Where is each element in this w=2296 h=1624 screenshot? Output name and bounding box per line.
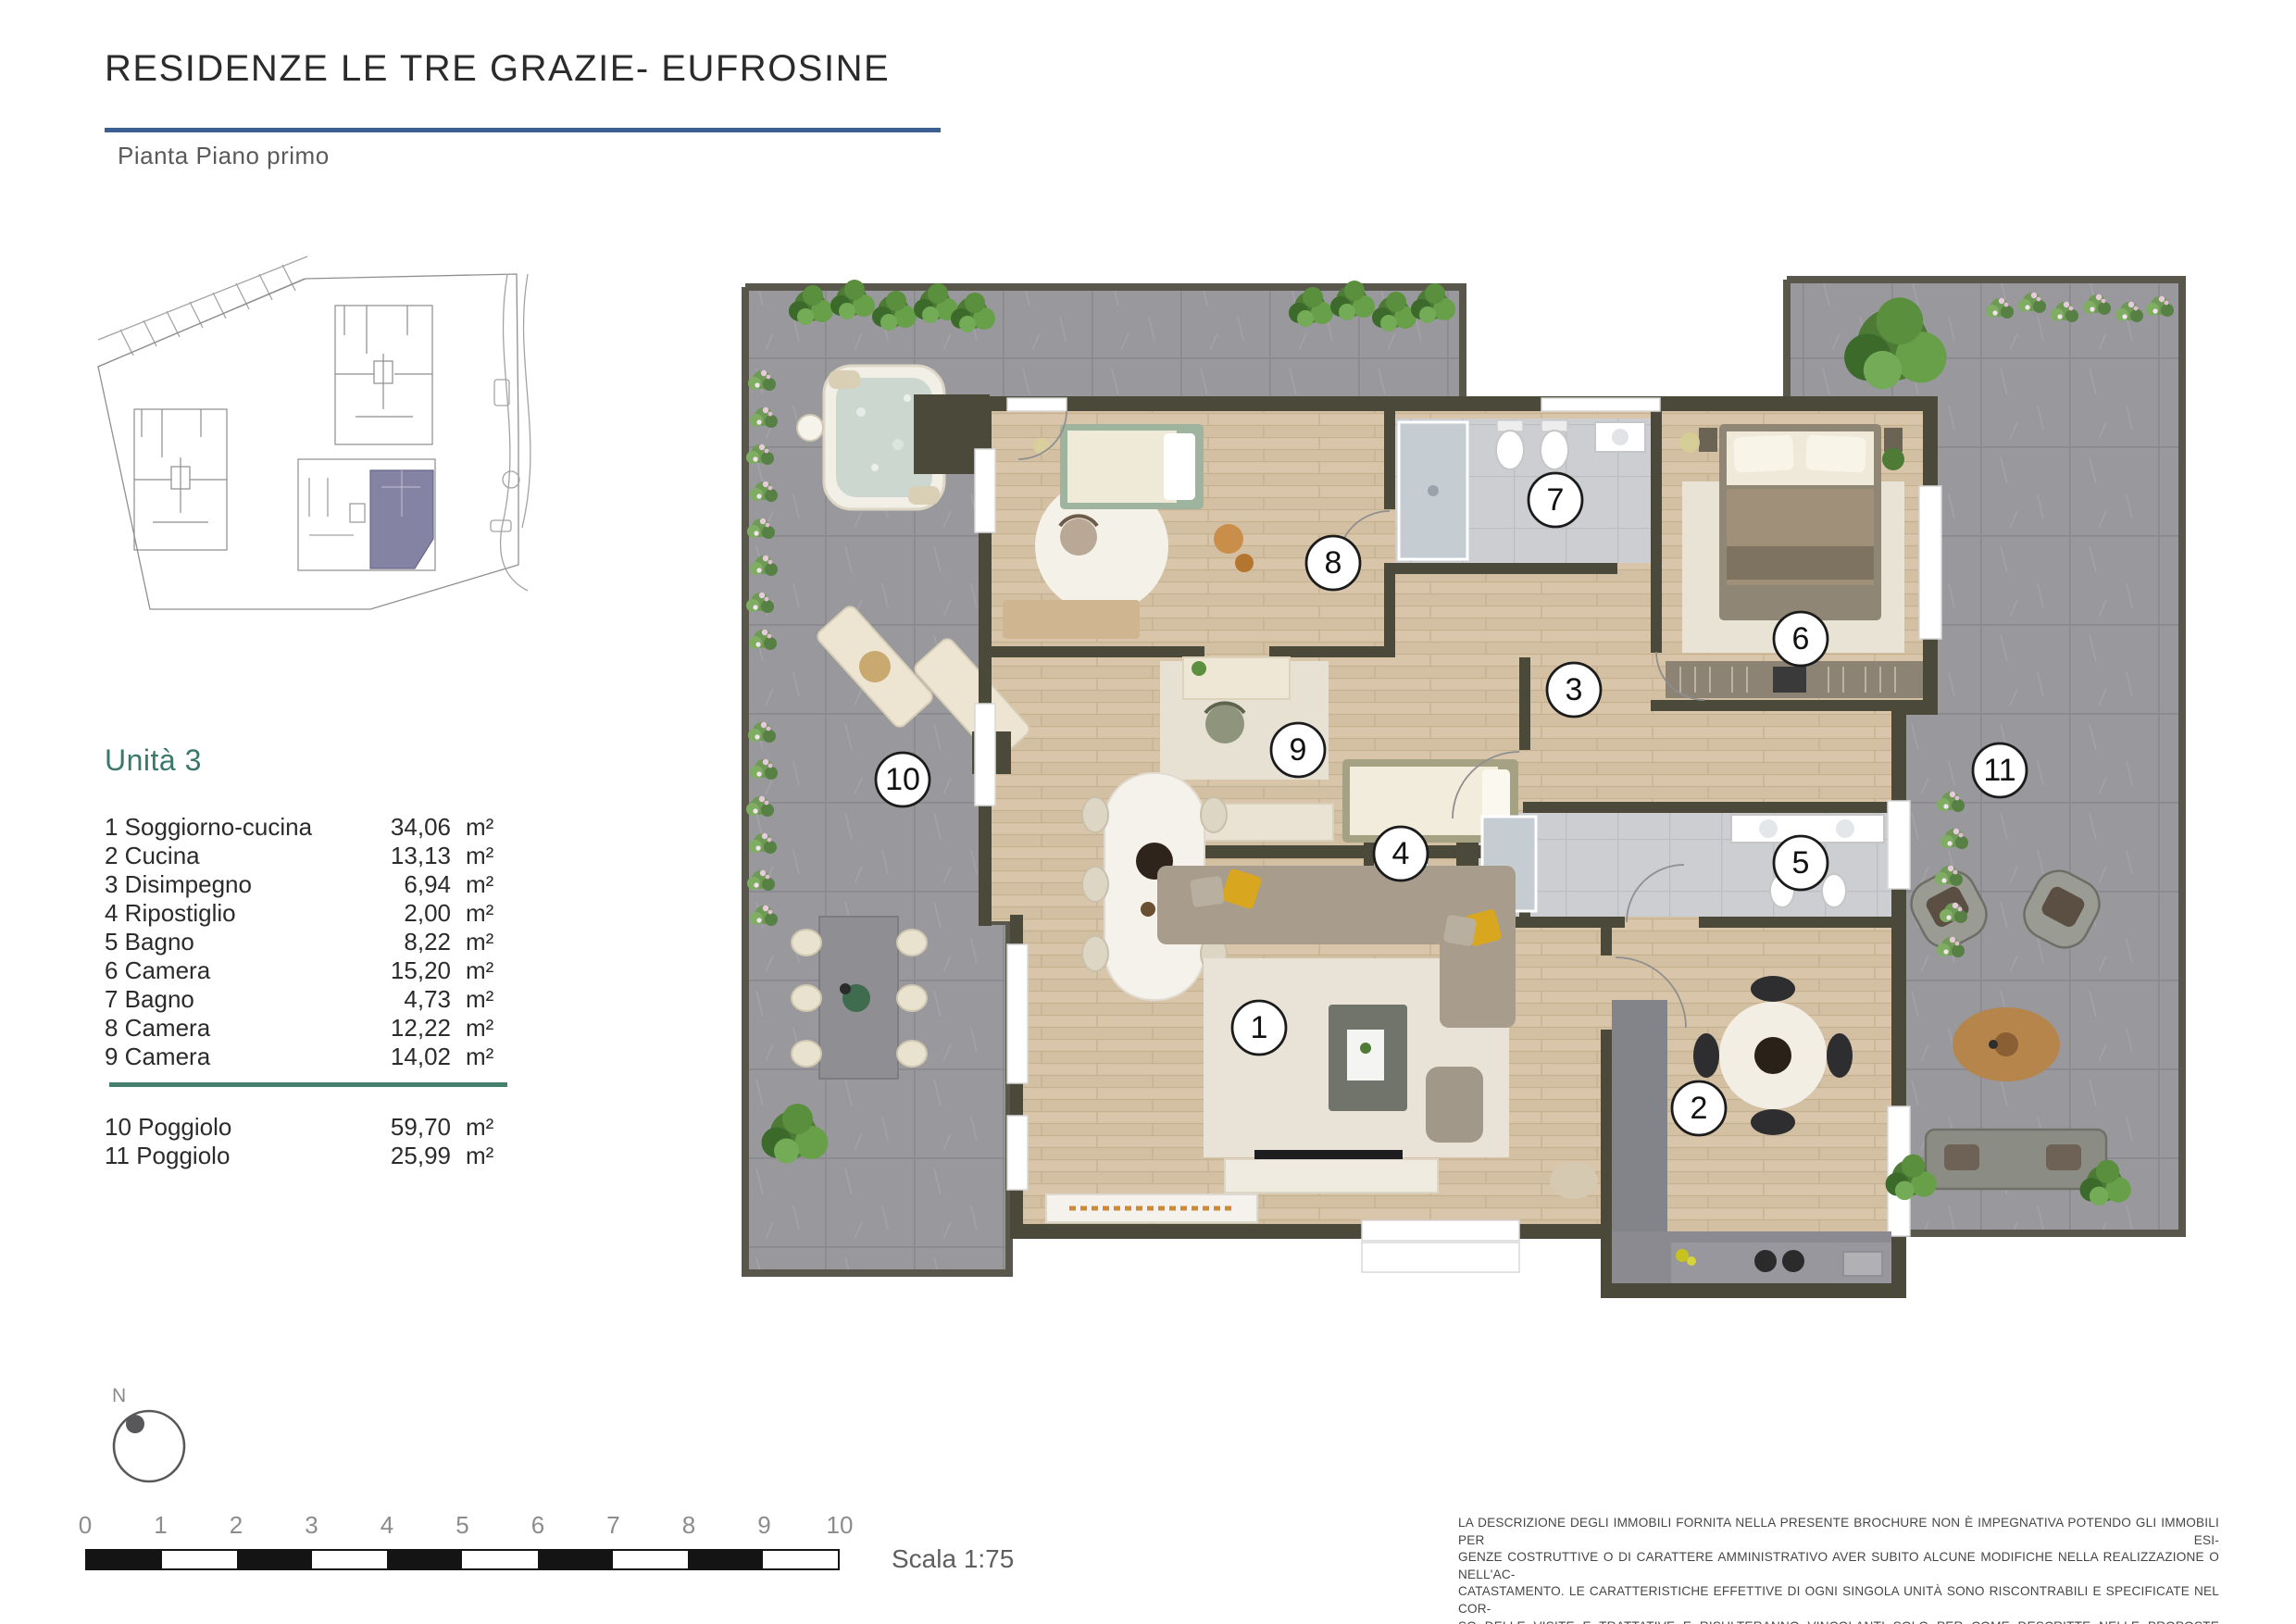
legend-row: 1 Soggiorno-cucina34,06m²: [105, 813, 512, 842]
legend-room-area: 8,22: [375, 928, 451, 956]
toilet: [1496, 431, 1524, 469]
legend-room-name: 3 Disimpegno: [105, 870, 375, 899]
legend-room-area: 13,13: [375, 842, 451, 870]
disclaimer-line: LA DESCRIZIONE DEGLI IMMOBILI FORNITA NE…: [1458, 1515, 2219, 1549]
disclaimer-line: GENZE COSTRUTTIVE O DI CARATTERE AMMINIS…: [1458, 1549, 2219, 1583]
scale-tick-label: 7: [606, 1511, 619, 1540]
disclaimer: LA DESCRIZIONE DEGLI IMMOBILI FORNITA NE…: [1458, 1515, 2219, 1624]
legend-room-name: 5 Bagno: [105, 928, 375, 956]
room-badge-number: 6: [1792, 621, 1810, 656]
legend-row: 7 Bagno4,73m²: [105, 985, 512, 1014]
legend-row: 2 Cucina13,13m²: [105, 842, 512, 870]
legend-room-name: 11 Poggiolo: [105, 1142, 375, 1170]
legend-row: 5 Bagno8,22m²: [105, 928, 512, 956]
legend-area-unit: m²: [451, 928, 512, 956]
legend-room-name: 8 Camera: [105, 1014, 375, 1043]
legend-room-area: 59,70: [375, 1113, 451, 1142]
site-building-top: [335, 306, 432, 444]
legend-room-list: 1 Soggiorno-cucina34,06m²2 Cucina13,13m²…: [105, 813, 512, 1071]
kitchen-sink: [1843, 1252, 1882, 1276]
scale-tick-label: 1: [154, 1511, 167, 1540]
scale-segment: [387, 1551, 462, 1568]
scale-segment: [237, 1551, 312, 1568]
room-badge-number: 5: [1792, 845, 1810, 881]
scale-segment: [538, 1551, 613, 1568]
room-badge-number: 11: [1983, 753, 2015, 788]
legend-area-unit: m²: [451, 842, 512, 870]
legend-area-unit: m²: [451, 1142, 512, 1170]
side-table: [797, 415, 823, 441]
toilet: [1822, 874, 1846, 907]
legend-room-name: 9 Camera: [105, 1043, 375, 1071]
legend-room-area: 15,20: [375, 956, 451, 985]
floor-plan: 1234567891011: [736, 269, 2190, 1301]
unit-label: Unità 3: [105, 743, 512, 778]
scale-tick-label: 3: [305, 1511, 318, 1540]
tv: [1254, 1150, 1403, 1159]
scalebar-ticks: 012345678910: [85, 1511, 840, 1539]
dresser: [1003, 600, 1140, 639]
chair: [1060, 518, 1097, 556]
legend-divider: [109, 1082, 507, 1087]
scale-tick-label: 0: [79, 1511, 92, 1540]
scale-segment: [688, 1551, 763, 1568]
legend-area-unit: m²: [451, 870, 512, 899]
legend-row: 6 Camera15,20m²: [105, 956, 512, 985]
brochure-page: RESIDENZE LE TRE GRAZIE- EUFROSINE Piant…: [0, 0, 2296, 1624]
legend-room-name: 10 Poggiolo: [105, 1113, 375, 1142]
legend-room-name: 1 Soggiorno-cucina: [105, 813, 375, 842]
room-badge-number: 1: [1251, 1010, 1268, 1045]
legend-area-unit: m²: [451, 956, 512, 985]
legend-room-name: 7 Bagno: [105, 985, 375, 1014]
page-title: RESIDENZE LE TRE GRAZIE- EUFROSINE: [105, 48, 890, 90]
scale-label: Scala 1:75: [892, 1544, 1014, 1574]
room-badge-number: 2: [1691, 1091, 1708, 1126]
site-roads: [98, 256, 530, 609]
scale-tick-label: 5: [455, 1511, 468, 1540]
scale-tick-label: 4: [381, 1511, 393, 1540]
room-badge-number: 8: [1325, 545, 1342, 581]
scale-segment: [312, 1551, 387, 1568]
tv-console: [1225, 1159, 1438, 1193]
legend-row: 4 Ripostiglio2,00m²: [105, 899, 512, 928]
legend-room-area: 2,00: [375, 899, 451, 928]
disclaimer-line: SO DELLE VISITE E TRATTATIVE E RISULTERA…: [1458, 1618, 2219, 1624]
legend-row: 9 Camera14,02m²: [105, 1043, 512, 1071]
scale-segment: [613, 1551, 688, 1568]
legend-room-name: 2 Cucina: [105, 842, 375, 870]
legend-room-area: 6,94: [375, 870, 451, 899]
scale-segment: [763, 1551, 838, 1568]
scale-segment: [462, 1551, 537, 1568]
pouf: [1426, 1067, 1483, 1143]
legend-area-unit: m²: [451, 1014, 512, 1043]
room-badge-number: 4: [1392, 836, 1410, 871]
legend-row: 11 Poggiolo25,99m²: [105, 1142, 512, 1170]
scale-tick-label: 10: [827, 1511, 854, 1540]
scalebar: [85, 1549, 840, 1570]
site-building-left: [134, 409, 227, 550]
north-indicator: [88, 1385, 208, 1496]
compass-north-dot: [126, 1415, 144, 1433]
room-badge-number: 3: [1566, 672, 1583, 707]
legend-balcony-list: 10 Poggiolo59,70m²11 Poggiolo25,99m²: [105, 1113, 512, 1170]
disclaimer-line: CATASTAMENTO. LE CARATTERISTICHE EFFETTI…: [1458, 1583, 2219, 1618]
scale-tick-label: 8: [682, 1511, 695, 1540]
legend-area-unit: m²: [451, 1043, 512, 1071]
legend-room-name: 6 Camera: [105, 956, 375, 985]
room-badge-number: 9: [1290, 732, 1307, 768]
compass-north-label: N: [112, 1385, 126, 1407]
scale-segment: [87, 1551, 162, 1568]
legend-room-area: 25,99: [375, 1142, 451, 1170]
scale-tick-label: 6: [531, 1511, 544, 1540]
room-badge-number: 10: [885, 762, 920, 797]
legend-row: 10 Poggiolo59,70m²: [105, 1113, 512, 1142]
legend-room-name: 4 Ripostiglio: [105, 899, 375, 928]
legend-room-area: 12,22: [375, 1014, 451, 1043]
bidet: [1541, 431, 1568, 469]
legend-area-unit: m²: [451, 813, 512, 842]
legend-area-unit: m²: [451, 985, 512, 1014]
scale-segment: [162, 1551, 237, 1568]
legend-row: 3 Disimpegno6,94m²: [105, 870, 512, 899]
room-badge-number: 7: [1547, 482, 1565, 518]
scale-tick-label: 9: [757, 1511, 770, 1540]
chair: [1205, 705, 1244, 743]
legend-room-area: 14,02: [375, 1043, 451, 1071]
site-building-highlight: [298, 459, 435, 570]
legend-room-area: 34,06: [375, 813, 451, 842]
site-location-map: [93, 250, 565, 639]
page-subtitle: Pianta Piano primo: [118, 142, 330, 170]
legend-area-unit: m²: [451, 1113, 512, 1142]
legend-room-area: 4,73: [375, 985, 451, 1014]
legend-row: 8 Camera12,22m²: [105, 1014, 512, 1043]
scale-tick-label: 2: [230, 1511, 243, 1540]
legend: Unità 3 1 Soggiorno-cucina34,06m²2 Cucin…: [105, 743, 512, 1170]
legend-area-unit: m²: [451, 899, 512, 928]
compass-circle: [114, 1411, 184, 1481]
title-underline: [105, 128, 941, 132]
